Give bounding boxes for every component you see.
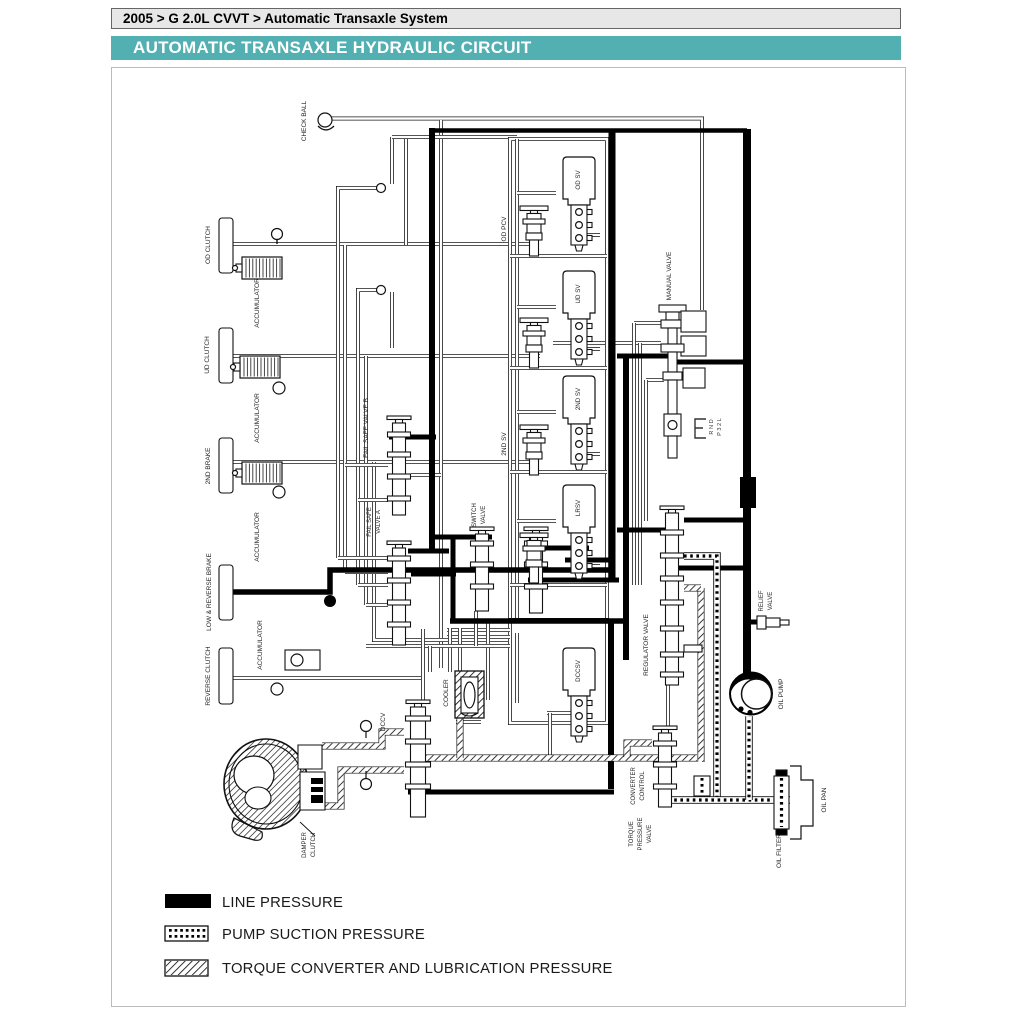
svg-text:ACCUMULATOR: ACCUMULATOR xyxy=(257,620,264,670)
svg-text:CLUTCH: CLUTCH xyxy=(311,833,317,857)
svg-text:R N D: R N D xyxy=(709,419,715,434)
svg-text:2ND SV: 2ND SV xyxy=(501,432,508,456)
svg-text:LINE PRESSURE: LINE PRESSURE xyxy=(222,895,343,911)
svg-text:FAIL SAFE VALVE B: FAIL SAFE VALVE B xyxy=(363,398,370,458)
svg-text:2ND SV: 2ND SV xyxy=(575,387,582,410)
svg-text:VALVE: VALVE xyxy=(647,825,653,843)
svg-text:CONVERTER: CONVERTER xyxy=(631,767,637,805)
svg-text:SWITCH: SWITCH xyxy=(472,503,478,527)
svg-text:CHECK BALL: CHECK BALL xyxy=(301,100,308,141)
svg-text:REVERSE CLUTCH: REVERSE CLUTCH xyxy=(205,646,212,706)
svg-text:2ND BRAKE: 2ND BRAKE xyxy=(205,447,212,485)
svg-text:LOW & REVERSE BRAKE: LOW & REVERSE BRAKE xyxy=(206,553,213,631)
svg-text:RELIEF: RELIEF xyxy=(759,590,765,611)
svg-text:UD SV: UD SV xyxy=(575,284,582,304)
svg-text:REGULATOR VALVE: REGULATOR VALVE xyxy=(643,614,650,676)
svg-text:TORQUE CONVERTER AND LUBRICATI: TORQUE CONVERTER AND LUBRICATION PRESSUR… xyxy=(222,961,613,977)
svg-text:OIL FILTER: OIL FILTER xyxy=(776,834,783,868)
svg-text:OD CLUTCH: OD CLUTCH xyxy=(205,226,212,264)
svg-text:OIL PAN: OIL PAN xyxy=(821,787,828,812)
svg-text:OD SV: OD SV xyxy=(575,170,582,190)
svg-text:DCCSV: DCCSV xyxy=(575,659,582,682)
svg-text:ACCUMULATOR: ACCUMULATOR xyxy=(254,512,261,562)
svg-text:DAMPER: DAMPER xyxy=(302,831,308,857)
svg-text:TORQUE: TORQUE xyxy=(629,821,635,847)
svg-text:ACCUMULATOR: ACCUMULATOR xyxy=(254,278,261,328)
svg-text:COOLER: COOLER xyxy=(443,679,450,707)
svg-text:UD CLUTCH: UD CLUTCH xyxy=(204,336,211,374)
svg-text:ACCUMULATOR: ACCUMULATOR xyxy=(254,393,261,443)
svg-text:PRESSURE: PRESSURE xyxy=(638,817,644,850)
svg-text:MANUAL VALVE: MANUAL VALVE xyxy=(666,251,673,300)
svg-text:OD PCV: OD PCV xyxy=(501,216,508,242)
svg-text:LRSV: LRSV xyxy=(575,499,582,516)
svg-text:VALVE: VALVE xyxy=(768,592,774,610)
svg-text:CONTROL: CONTROL xyxy=(640,771,646,801)
svg-text:P 3 2 L: P 3 2 L xyxy=(717,418,723,436)
svg-text:FAIL SAFE: FAIL SAFE xyxy=(367,507,373,536)
svg-text:DCCV: DCCV xyxy=(380,712,387,731)
svg-text:VALVE: VALVE xyxy=(481,506,487,524)
svg-text:OIL PUMP: OIL PUMP xyxy=(778,679,785,710)
svg-text:PUMP SUCTION PRESSURE: PUMP SUCTION PRESSURE xyxy=(222,927,425,943)
svg-text:VALVE A: VALVE A xyxy=(376,510,382,534)
